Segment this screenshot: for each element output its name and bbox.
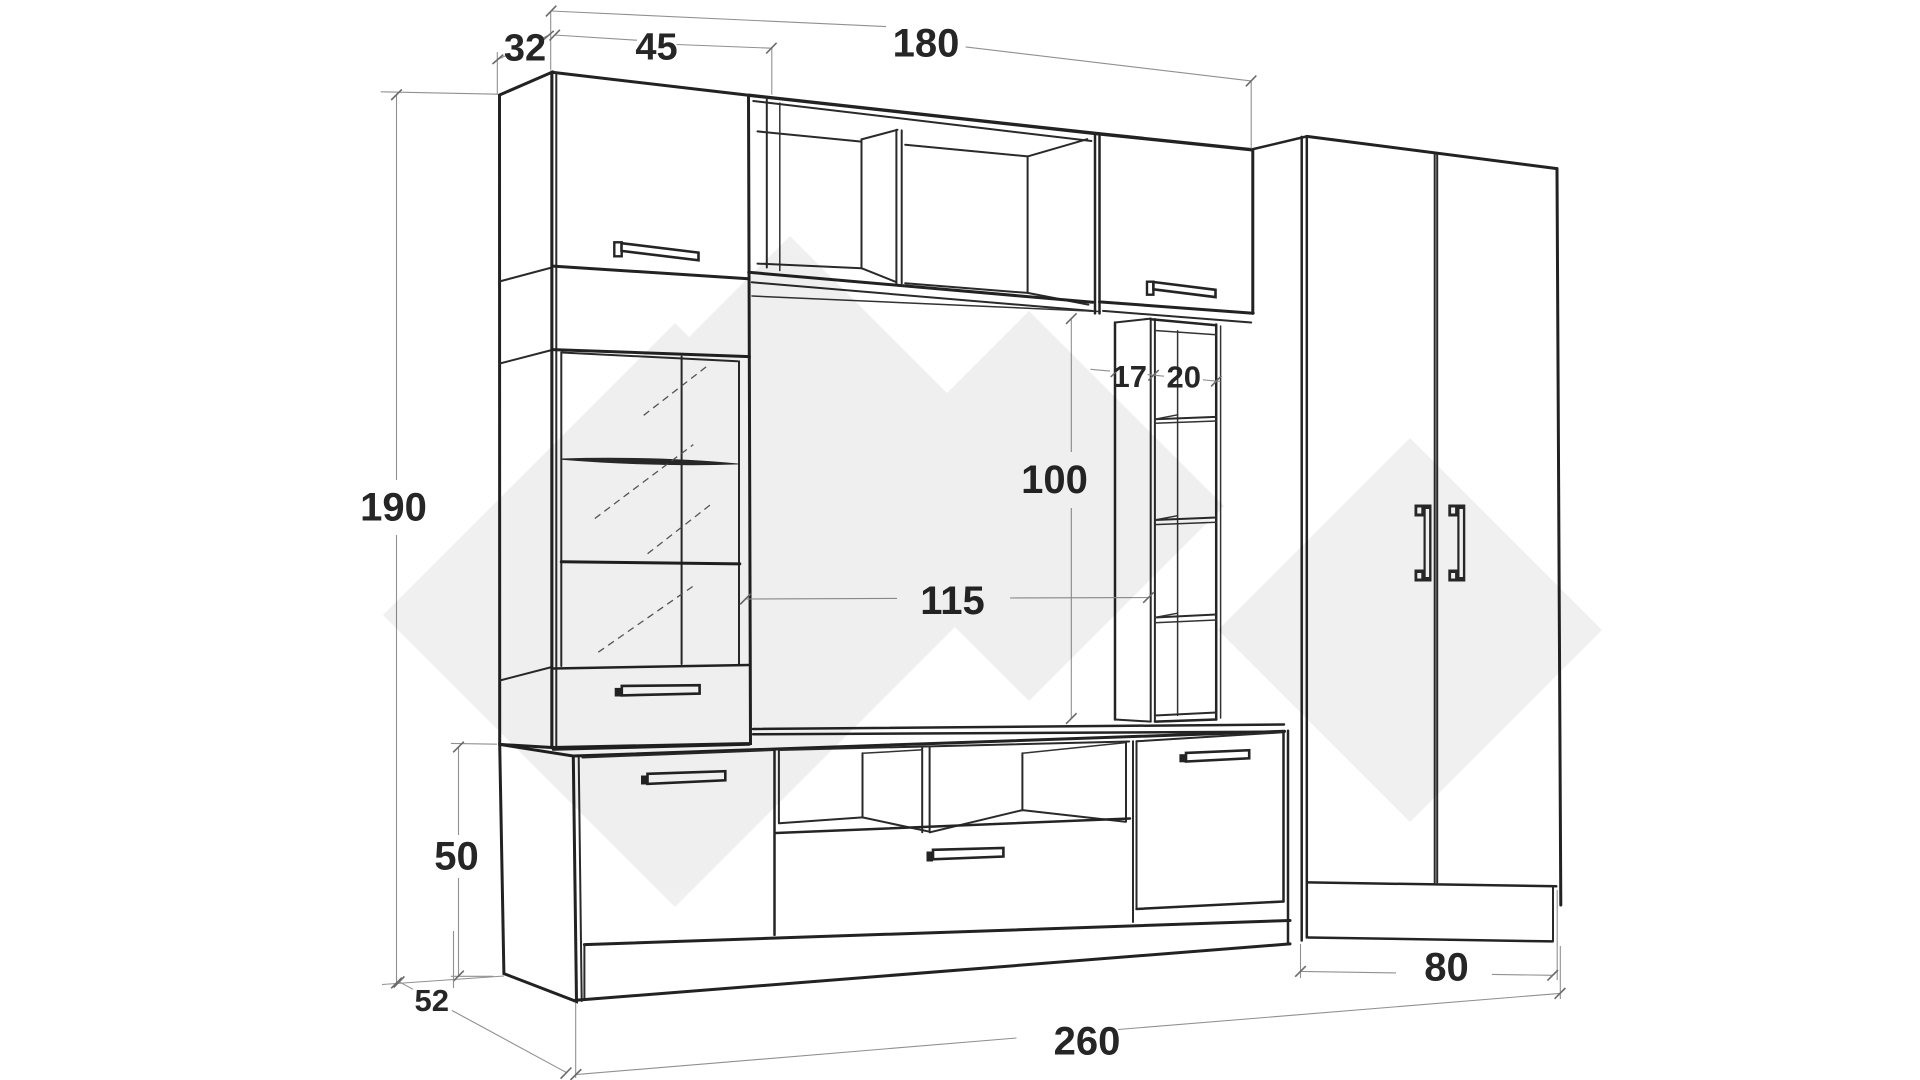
svg-text:32: 32 [504, 28, 546, 70]
svg-text:80: 80 [1424, 946, 1469, 990]
svg-text:45: 45 [635, 27, 677, 69]
svg-text:190: 190 [360, 486, 427, 530]
svg-text:20: 20 [1167, 360, 1201, 395]
svg-text:52: 52 [415, 983, 449, 1018]
svg-text:260: 260 [1054, 1020, 1121, 1064]
svg-text:180: 180 [893, 22, 960, 66]
svg-text:50: 50 [434, 835, 479, 879]
svg-text:17: 17 [1113, 359, 1147, 394]
